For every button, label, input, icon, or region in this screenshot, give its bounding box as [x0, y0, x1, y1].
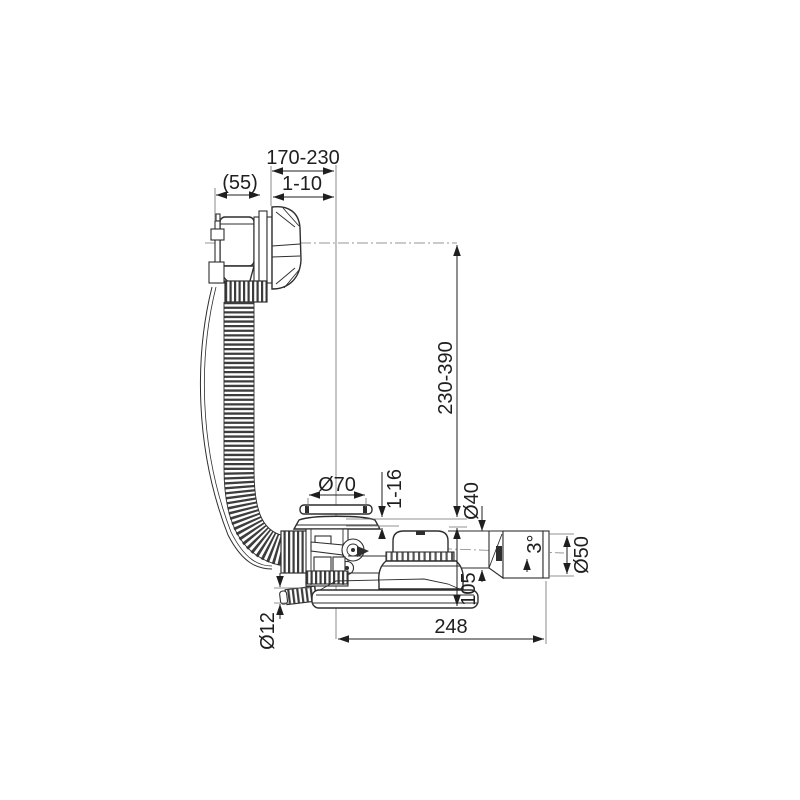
dim-label-hose-length: 230-390: [435, 341, 457, 414]
overflow-flange: [259, 211, 267, 289]
dim-label-trap-height: 105: [458, 572, 480, 605]
dim-label-plug-diameter: Ø70: [318, 474, 356, 496]
overflow-knob: [272, 207, 301, 289]
side-nozzle: [279, 586, 317, 605]
overflow-hose-nut: [225, 281, 267, 302]
dim-label-outlet-slope: 3°: [524, 534, 546, 553]
dim-label-pipe-diameter: Ø40: [461, 482, 483, 520]
dim-label-rim-adjust: 1-16: [384, 469, 406, 509]
corrugated-hose: [200, 287, 309, 573]
dim-label-outlet-diameter: Ø50: [571, 536, 593, 574]
dim-label-overall-length: 248: [434, 616, 467, 638]
hose-drain-nut: [281, 531, 309, 573]
dim-label-head-width: (55): [222, 172, 258, 194]
drawing-canvas: 170-230 (55) 1-10 230-390 Ø70 1-16 Ø40 3…: [0, 0, 800, 800]
base-plate: [312, 590, 478, 608]
hose-inner-edge: [254, 302, 291, 537]
cable-clamp-block: [314, 557, 331, 571]
dim-label-nozzle-diameter: Ø12: [257, 612, 279, 650]
overflow-head: [209, 207, 301, 302]
cable-clamp: [209, 262, 224, 283]
outlet-seal: [496, 546, 502, 561]
trap-ring-nut: [386, 552, 454, 561]
dim-label-knob-travel: 1-10: [282, 173, 322, 195]
plug-seat-flange: [294, 516, 380, 529]
technical-drawing: 170-230 (55) 1-10 230-390 Ø70 1-16 Ø40 3…: [0, 0, 800, 800]
hose-ribs: [239, 302, 291, 552]
plug-cap: [300, 505, 372, 514]
dim-label-span-top: 170-230: [266, 147, 339, 169]
ribbed-band: [306, 571, 348, 584]
